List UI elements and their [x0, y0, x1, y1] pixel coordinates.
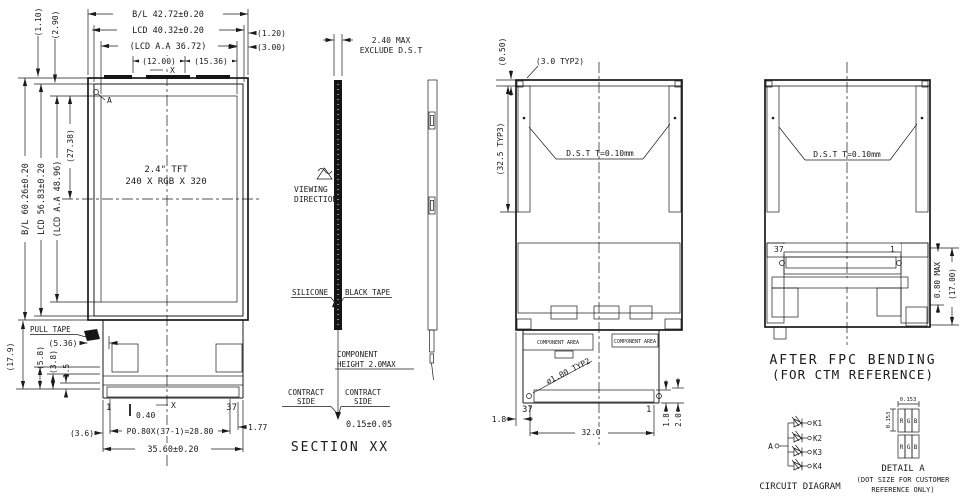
detail-a: 0.153 0.153 R G B R G B DETAIL A (DOT SI… [857, 397, 951, 494]
dim-pitch: P0.80X(37-1)=28.80 [127, 427, 214, 436]
contact-left-line2: SIDE [297, 397, 316, 406]
component-line2: HEIGHT 2.0MAX [337, 360, 396, 369]
pin-last-label: 37 [226, 403, 237, 413]
dim-2-0: 2.0 [674, 413, 683, 427]
subpixel-g1: G [907, 418, 911, 425]
bent-caption-line1: AFTER FPC BENDING [769, 353, 936, 368]
dim-1-20: (1.20) [257, 29, 286, 38]
section-title: SECTION XX [291, 440, 389, 455]
dim-3-8: (3.8) [49, 350, 58, 374]
dim-lcd-width: LCD 40.32±0.20 [132, 26, 204, 36]
datum-x-top: X [170, 66, 175, 75]
contact-left-line1: CONTRACT [288, 388, 325, 397]
panel-size-label: 2.4" TFT [144, 165, 188, 175]
dim-32-0: 32.0 [581, 428, 600, 437]
detail-a-note2: REFERENCE ONLY) [871, 486, 934, 494]
dim-12-00: (12.00) [142, 57, 176, 66]
dim-1-5: 1.5 [62, 364, 71, 379]
bent-pin-last: 37 [774, 245, 784, 254]
bent-caption-line2: (FOR CTM REFERENCE) [772, 367, 934, 382]
subpixel-b2: B [914, 444, 918, 451]
dim-fpc-thickness: 0.15±0.05 [346, 420, 392, 430]
dim-1-8-right: 1.8 [662, 413, 671, 427]
dim-1-10: (1.10) [34, 8, 43, 37]
dim-3-00: (3.00) [257, 43, 286, 52]
datum-a-label: A [107, 96, 112, 105]
dim-thickness-line1: 2.40 MAX [372, 36, 411, 45]
cathode-label-k4: K4 [813, 462, 823, 471]
rear-pin-last: 37 [522, 405, 533, 415]
dim-bl-height: B/L 60.26±0.20 [21, 163, 31, 235]
silicone-label: SILICONE [292, 288, 329, 297]
viewing-line1: VIEWING [294, 185, 328, 194]
section-view: 2.40 MAX EXCLUDE D.S.T VIEWING DIRECTION… [282, 34, 437, 455]
dim-2-90: (2.90) [51, 11, 60, 40]
dim-27-38: (27.38) [66, 129, 75, 163]
drawing-svg: A 2.4" TFT 240 X RGB X 320 B/L 42.72±0.2… [0, 0, 973, 504]
dim-thickness-line2: EXCLUDE D.S.T [360, 46, 423, 55]
viewing-line2: DIRECTION [294, 195, 338, 204]
dim-lcd-height: LCD 56.83±0.20 [37, 163, 47, 235]
contact-right-line1: CONTRACT [345, 388, 382, 397]
dim-0-80: 0.80 MAX [933, 261, 942, 298]
dim-17-9: (17.9) [6, 343, 15, 372]
detail-a-note1: (DOT SIZE FOR CUSTOMER [857, 476, 951, 484]
cathode-label-k2: K2 [813, 434, 822, 443]
lcd-outline-drawing: A 2.4" TFT 240 X RGB X 320 B/L 42.72±0.2… [0, 0, 973, 504]
subpixel-g2: G [907, 444, 911, 451]
dim-0-40: 0.40 [136, 411, 155, 420]
component-area-1: COMPONENT AREA [537, 340, 579, 346]
black-tape-label: BLACK TAPE [345, 288, 391, 297]
front-view: A 2.4" TFT 240 X RGB X 320 B/L 42.72±0.2… [6, 8, 286, 468]
rear-view: (0.50) (3.0 TYP2) (32.5 TYP3) D.S.T T=0.… [492, 38, 684, 445]
viewing-direction-icon [317, 168, 332, 179]
bent-pin-first: 1 [890, 245, 895, 254]
dim-17-00: (17.00) [948, 268, 957, 300]
circuit-caption: CIRCUIT DIAGRAM [759, 482, 841, 492]
dim-32-5: (32.5 TYP3) [496, 123, 505, 176]
dim-5-8: (5.8) [36, 346, 45, 370]
bent-dst-note: D.S.T T=0.10mm [813, 150, 881, 159]
subpixel-r2: R [900, 444, 904, 451]
anode-label: A [768, 442, 773, 451]
dim-bl-width: B/L 42.72±0.20 [132, 10, 204, 20]
dim-1-8-left: 1.8 [492, 415, 507, 424]
datum-x-bottom: X [171, 401, 176, 410]
side-profile [428, 80, 437, 380]
subpixel-r1: R [900, 418, 904, 425]
pull-tape-label: PULL TAPE [30, 325, 71, 334]
contact-right-line2: SIDE [354, 397, 373, 406]
dim-aa-width: (LCD A.A 36.72) [130, 42, 207, 52]
dim-1-77: 1.77 [248, 423, 267, 432]
detail-dim-top: 0.153 [900, 397, 917, 403]
component-area-2: COMPONENT AREA [614, 339, 656, 345]
dim-aa-height: (LCD A.A 48.96) [53, 161, 63, 238]
panel-resolution-label: 240 X RGB X 320 [125, 177, 206, 187]
dim-0-50: (0.50) [498, 38, 507, 67]
component-line1: COMPONENT [337, 350, 378, 359]
pin-first-label: 1 [106, 403, 111, 413]
pull-tape-icon [84, 329, 100, 341]
detail-a-title: DETAIL A [881, 464, 925, 474]
dim-5-36: (5.36) [49, 339, 78, 348]
detail-dim-left: 0.153 [886, 412, 892, 429]
rear-dst-note: D.S.T T=0.10mm [566, 149, 634, 158]
circuit-diagram: A K1 K2 K3 K4 CIRCUIT DIAGRAM [759, 416, 841, 492]
rear-pin-first: 1 [646, 405, 651, 415]
dim-fpc-width: 35.60±0.20 [147, 445, 198, 455]
hole-note: ∅1.00 TYP2 [545, 356, 592, 386]
dim-3-0: (3.0 TYP2) [536, 57, 584, 66]
bent-view: D.S.T T=0.10mm 37 1 0.80 MAX (17.00) AFT… [765, 62, 959, 382]
subpixel-b1: B [914, 418, 918, 425]
cathode-label-k1: K1 [813, 419, 822, 428]
dim-15-36: (15.36) [194, 57, 228, 66]
cathode-label-k3: K3 [813, 448, 822, 457]
dim-3-6: (3.6) [70, 429, 94, 438]
